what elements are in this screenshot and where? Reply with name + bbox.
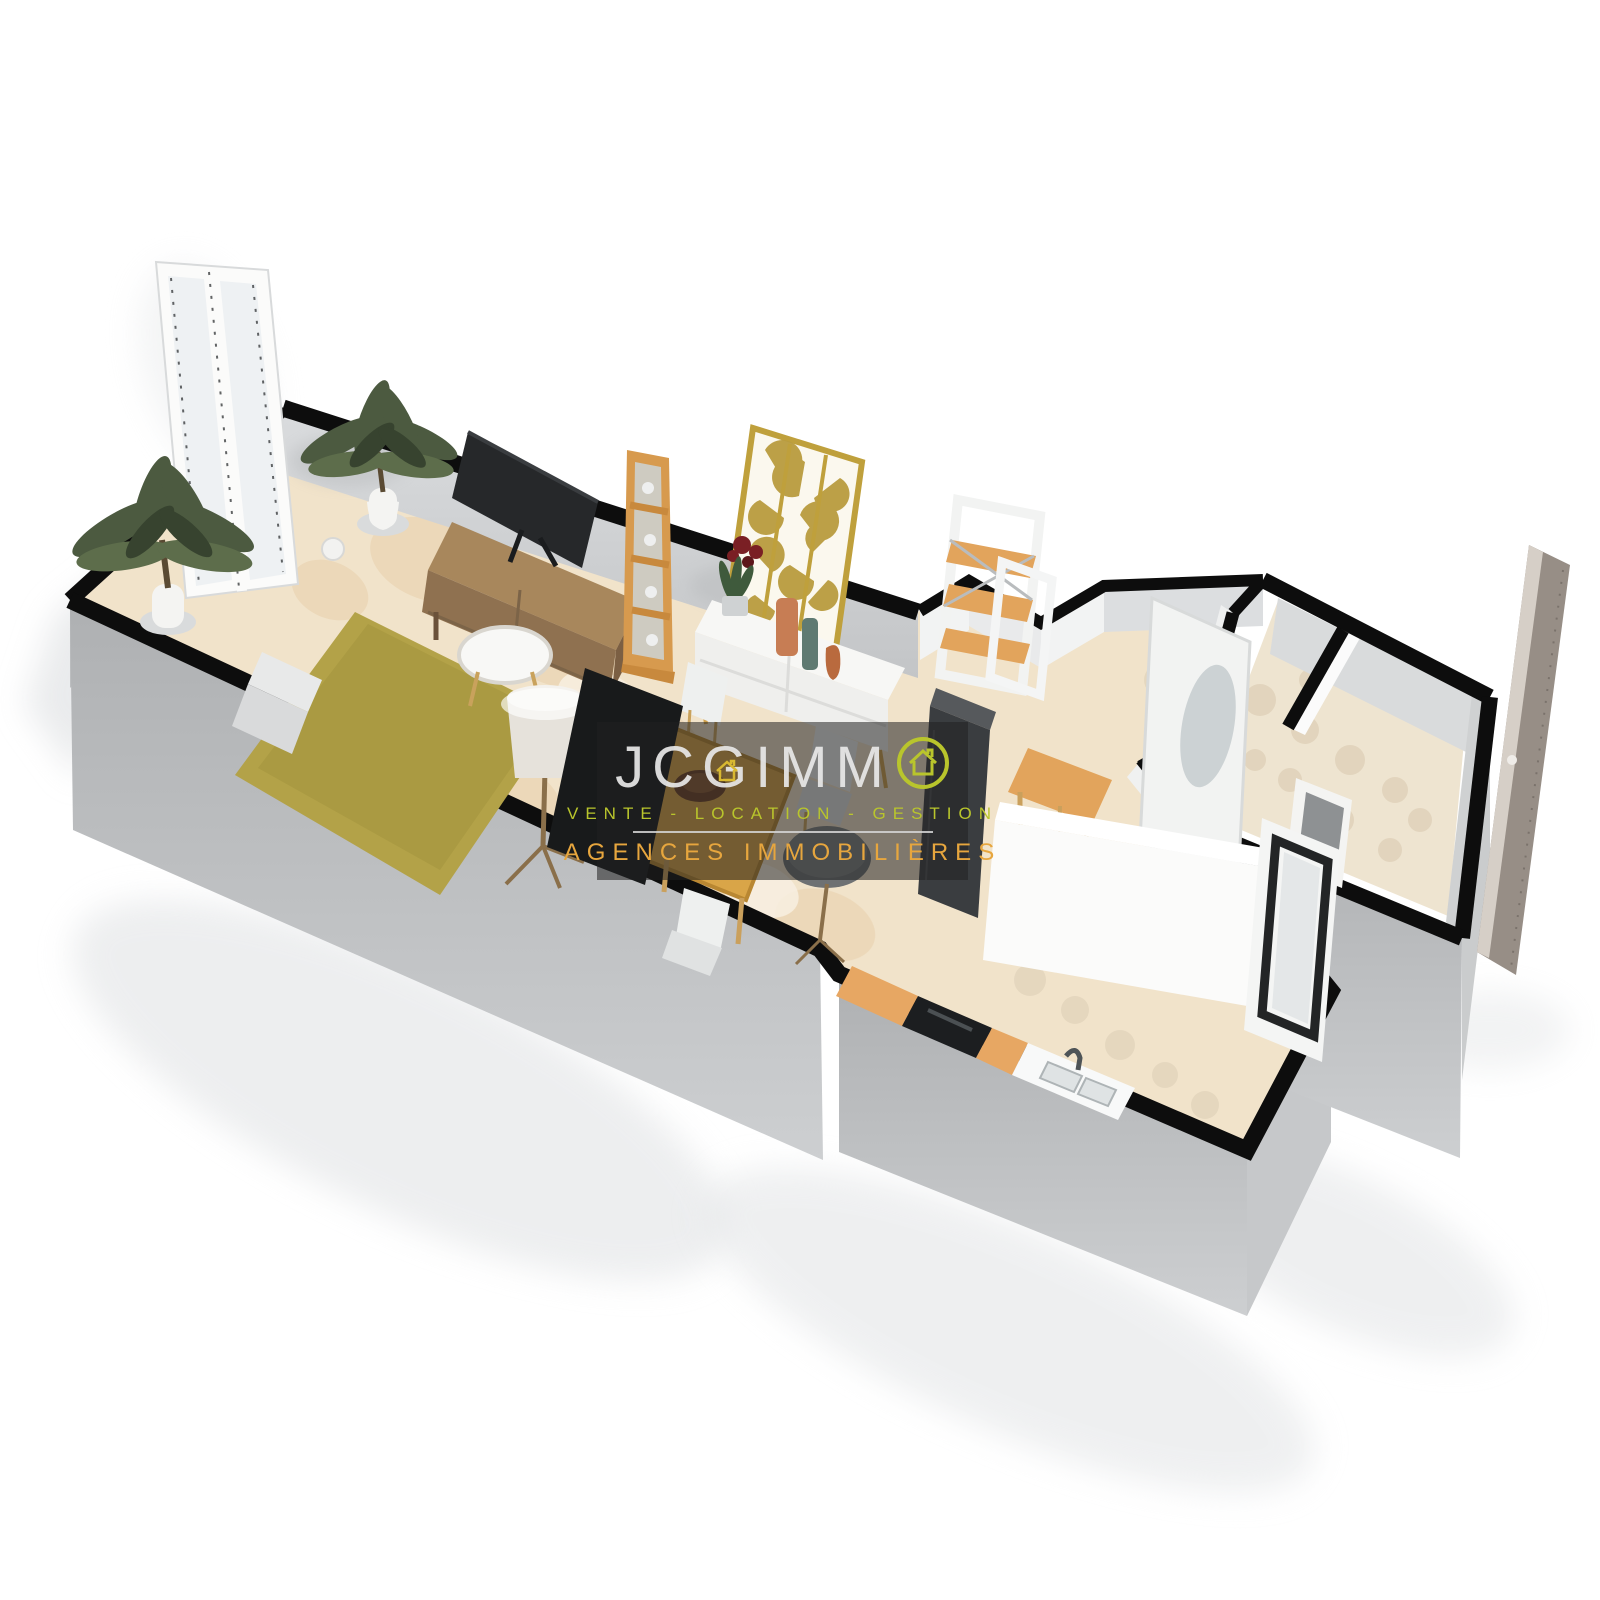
watermark-subtitle: AGENCES IMMOBILIÈRES	[564, 839, 1001, 867]
watermark-divider	[633, 831, 933, 833]
house-in-circle-icon	[896, 736, 950, 800]
watermark-overlay: JCGIMM VENTE - LOCATION - GESTION AGENCE…	[597, 722, 968, 880]
screenshot-canvas: )	[0, 0, 1600, 1600]
watermark-tagline: VENTE - LOCATION - GESTION	[567, 804, 998, 824]
house-icon	[714, 759, 740, 783]
brand-mid: IMM	[755, 739, 892, 797]
brand-g: G	[702, 739, 755, 797]
brand-logo: JCGIMM	[615, 736, 950, 800]
ladder-shelf	[621, 450, 675, 684]
decor-sphere	[322, 538, 344, 560]
entry-door-panel	[1477, 545, 1570, 975]
brand-prefix: JC	[615, 739, 702, 797]
